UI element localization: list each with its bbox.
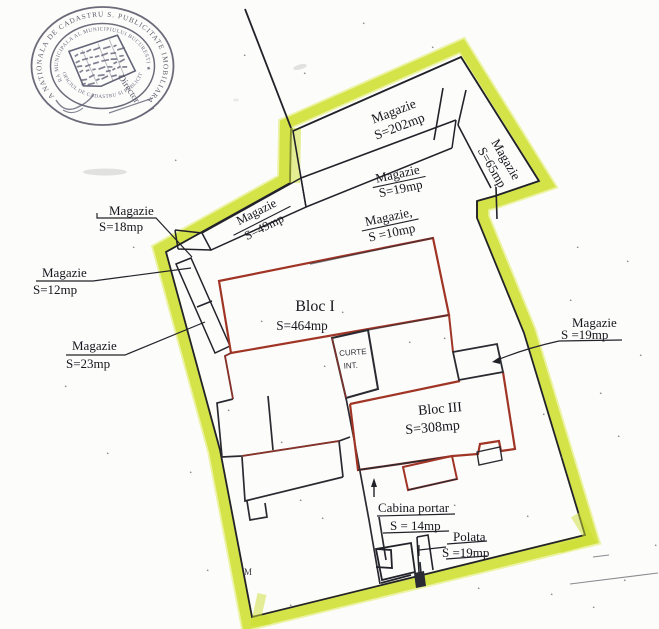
svg-text:S = 14mp: S = 14mp <box>390 518 441 533</box>
svg-text:S=23mp: S=23mp <box>66 356 110 371</box>
svg-text:M: M <box>244 567 252 577</box>
svg-text:S=12mp: S=12mp <box>33 282 77 297</box>
svg-text:Bloc I: Bloc I <box>295 298 335 315</box>
svg-text:INT.: INT. <box>343 361 358 371</box>
svg-text:CURTE: CURTE <box>339 347 367 358</box>
svg-text:Magazie: Magazie <box>72 338 117 353</box>
svg-text:S=18mp: S=18mp <box>99 219 143 234</box>
svg-text:Magazie: Magazie <box>42 265 87 280</box>
svg-text:Cabina portar: Cabina portar <box>378 500 450 515</box>
svg-text:S=464mp: S=464mp <box>276 318 328 333</box>
svg-text:Magazie: Magazie <box>109 203 154 218</box>
